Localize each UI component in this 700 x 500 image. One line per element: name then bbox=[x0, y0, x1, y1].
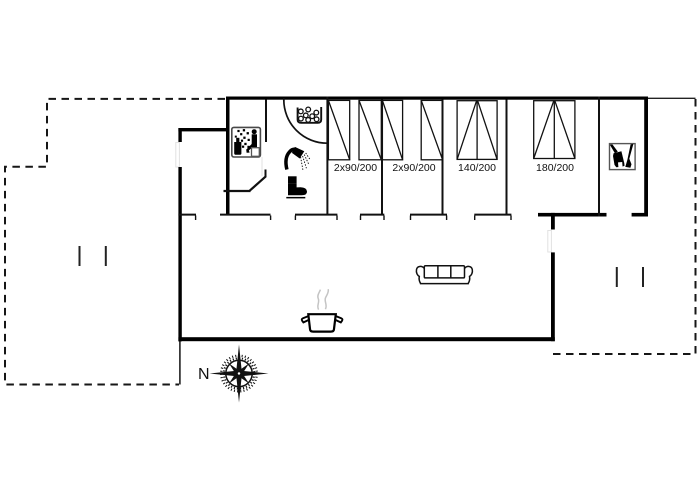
svg-text:2x90/200: 2x90/200 bbox=[392, 162, 435, 174]
svg-text:180/200: 180/200 bbox=[536, 162, 574, 174]
svg-text:2x90/200: 2x90/200 bbox=[334, 162, 377, 174]
svg-text:N: N bbox=[198, 366, 210, 383]
svg-text:140/200: 140/200 bbox=[458, 162, 496, 174]
